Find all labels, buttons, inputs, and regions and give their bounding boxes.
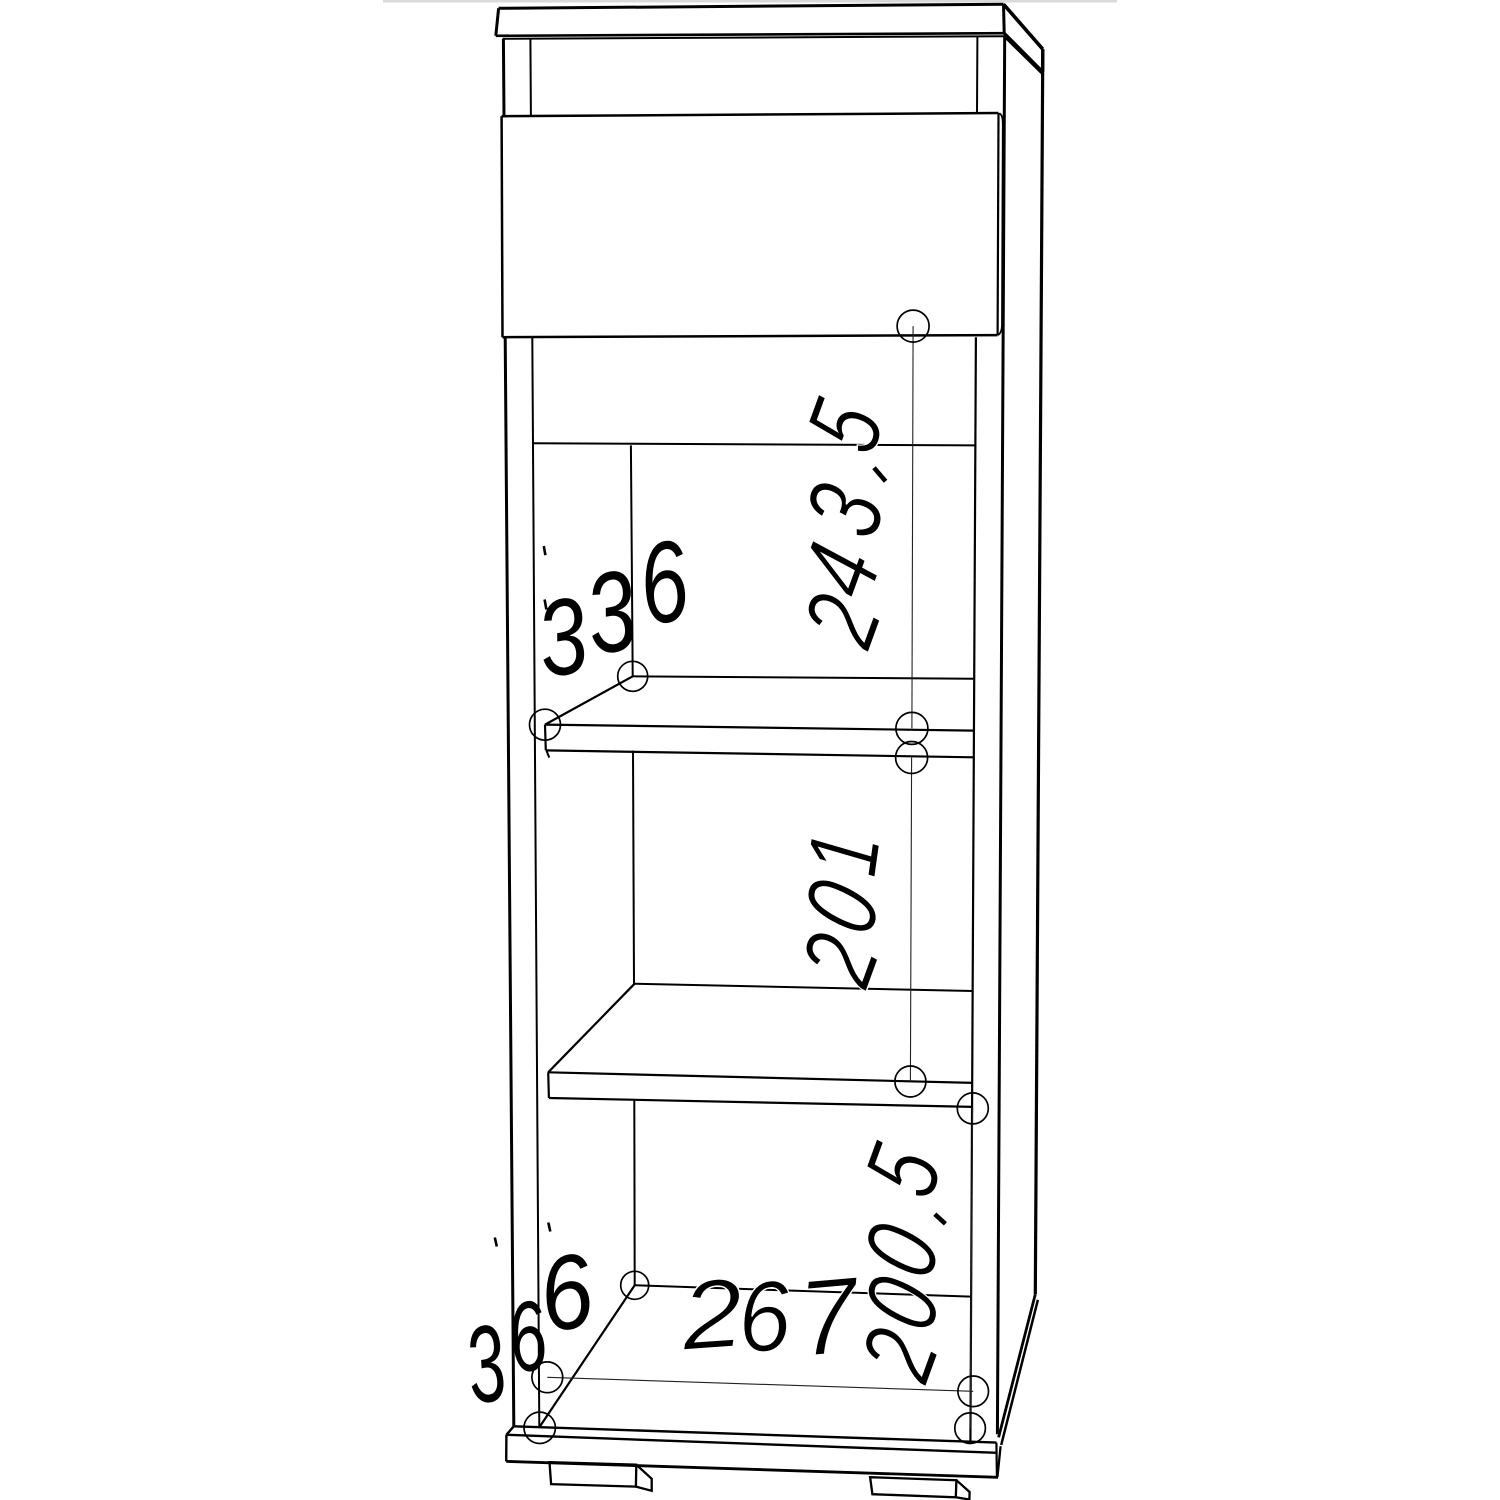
svg-text:6: 6 (734, 1259, 795, 1374)
